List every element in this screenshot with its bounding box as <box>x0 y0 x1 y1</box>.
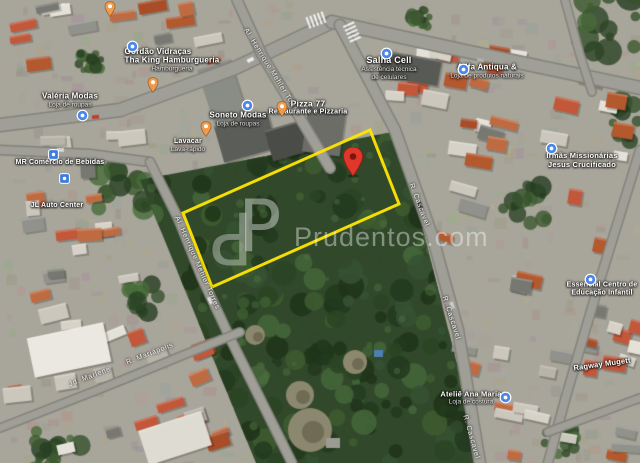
poi-pin-west[interactable] <box>147 77 159 98</box>
salha-cell-pin[interactable] <box>380 47 393 65</box>
markers-layer <box>0 0 640 463</box>
irmas-missionarias-pin[interactable] <box>545 142 558 160</box>
pizza-77-pin[interactable] <box>276 101 288 122</box>
lavacar-pin[interactable] <box>200 121 212 142</box>
gordao-vidracas-pin[interactable] <box>126 40 139 58</box>
atelie-ana-maria-pin[interactable] <box>499 391 512 409</box>
essencial-pin[interactable] <box>584 273 597 291</box>
soneto-modas-pin[interactable] <box>241 99 254 117</box>
map-view: Al. Henrique Mehler TorresAl. Henrique M… <box>0 0 640 463</box>
valeria-modas-pin[interactable] <box>76 109 89 127</box>
poi-pin-north[interactable] <box>104 1 116 22</box>
jl-auto-center-pin[interactable] <box>59 171 70 189</box>
mr-bebidas-pin[interactable] <box>48 147 59 165</box>
allfa-pin[interactable] <box>457 63 470 81</box>
red-location-pin[interactable] <box>342 147 364 183</box>
